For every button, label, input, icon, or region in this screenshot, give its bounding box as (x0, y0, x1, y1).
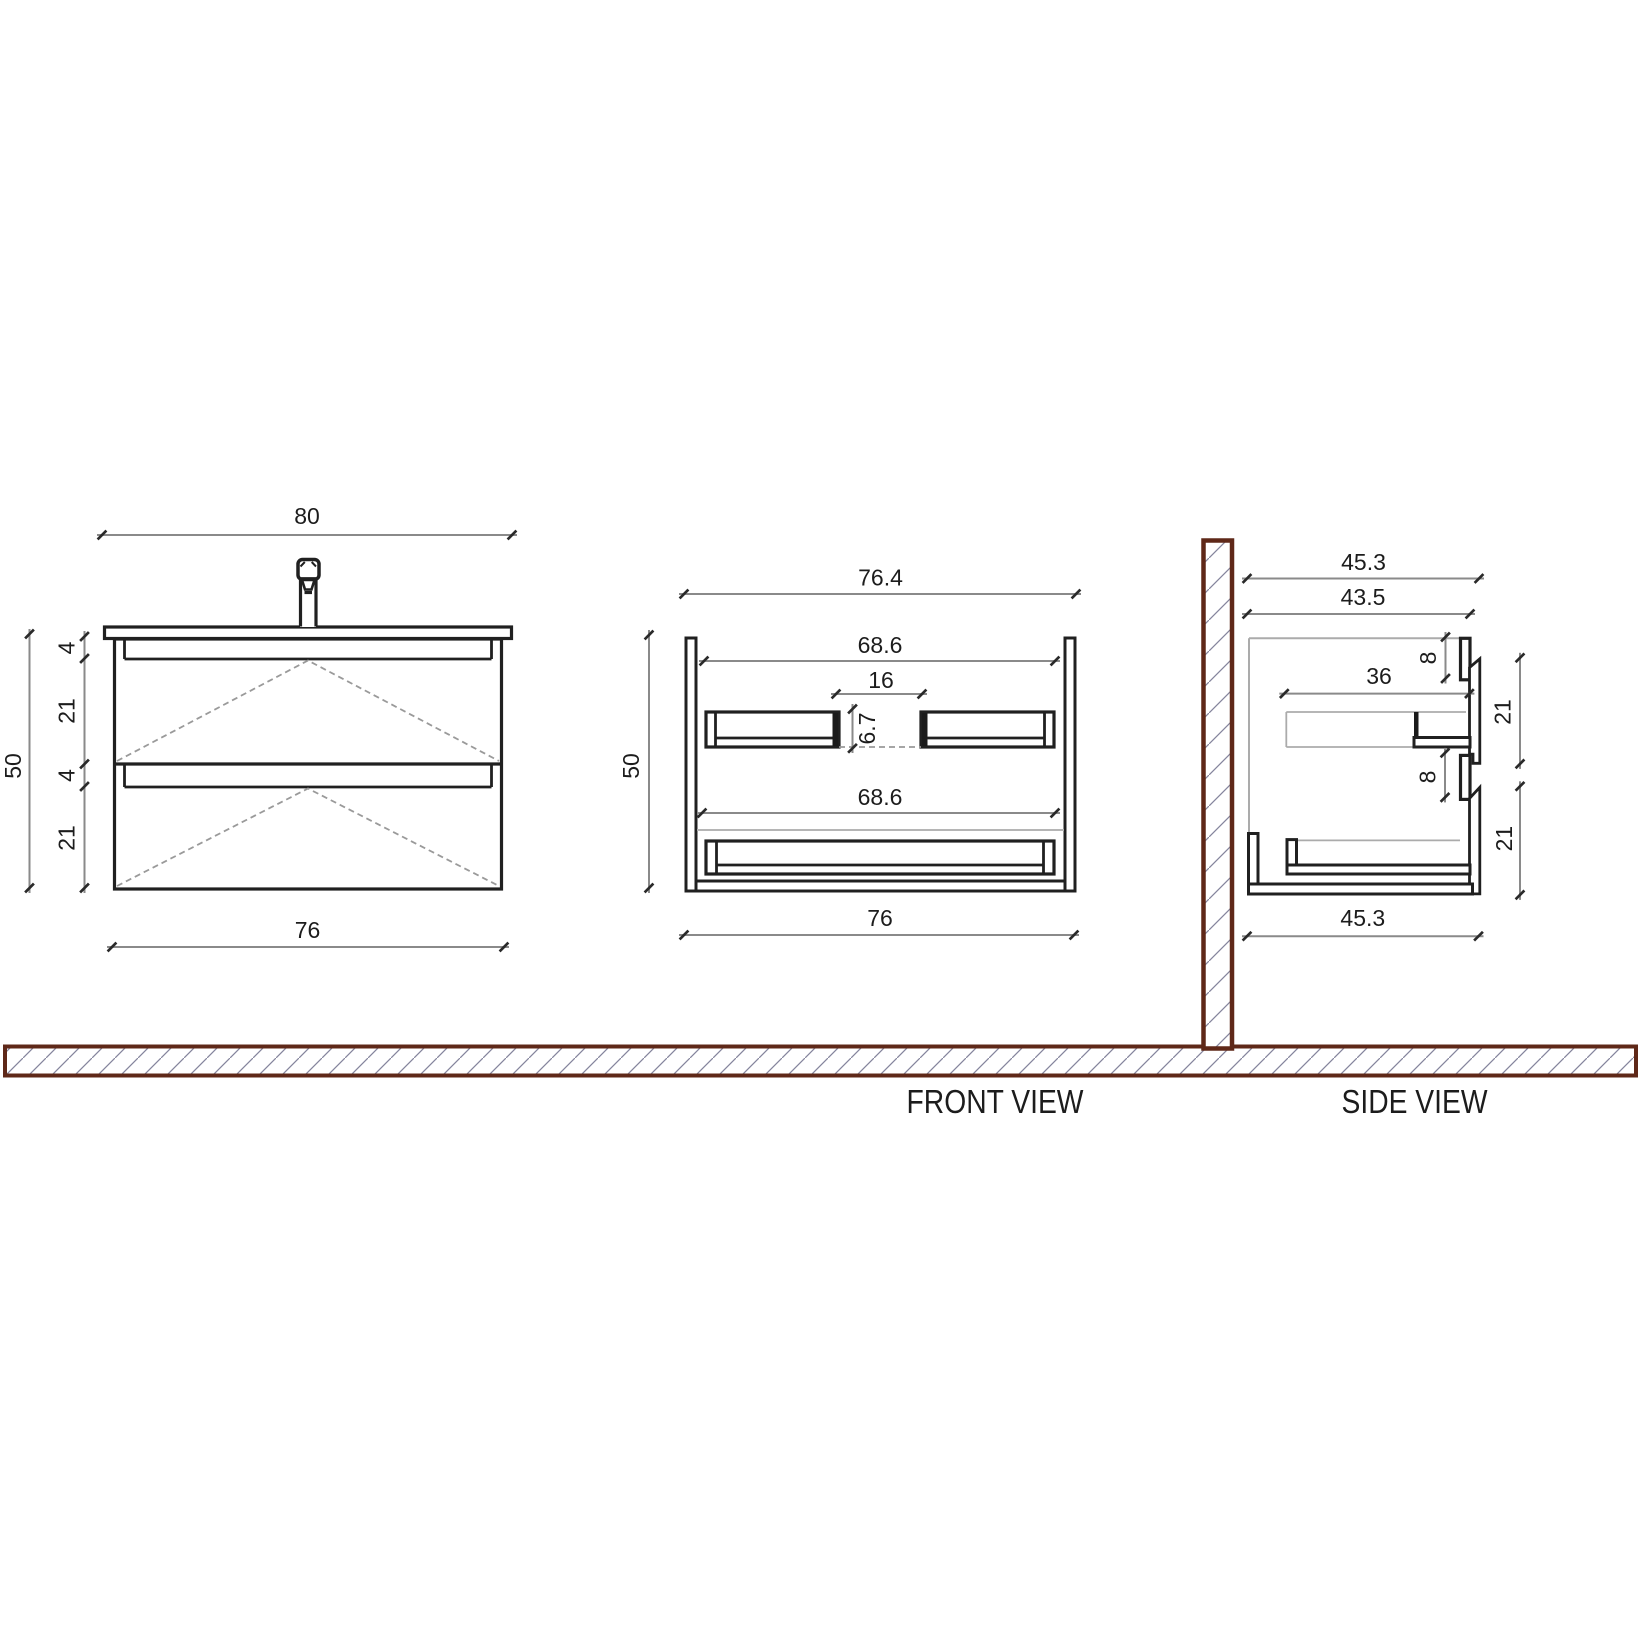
svg-text:50: 50 (618, 753, 644, 779)
svg-text:45.3: 45.3 (1340, 905, 1385, 931)
svg-text:36: 36 (1366, 663, 1392, 689)
svg-text:21: 21 (1490, 699, 1516, 725)
svg-text:FRONT VIEW: FRONT VIEW (907, 1083, 1085, 1120)
svg-text:50: 50 (0, 753, 26, 779)
svg-text:80: 80 (294, 503, 320, 529)
svg-text:4: 4 (54, 641, 80, 654)
svg-text:8: 8 (1415, 652, 1441, 665)
svg-text:8: 8 (1415, 771, 1441, 784)
svg-text:16: 16 (868, 667, 894, 693)
svg-text:76: 76 (295, 917, 321, 943)
svg-text:43.5: 43.5 (1341, 584, 1386, 610)
svg-text:76.4: 76.4 (858, 565, 903, 591)
svg-text:68.6: 68.6 (858, 632, 903, 658)
svg-text:21: 21 (54, 698, 80, 724)
svg-text:4: 4 (54, 769, 80, 782)
svg-text:SIDE VIEW: SIDE VIEW (1342, 1083, 1489, 1120)
svg-text:21: 21 (54, 825, 80, 851)
svg-text:76: 76 (867, 905, 893, 931)
svg-text:6.7: 6.7 (854, 713, 880, 745)
svg-text:45.3: 45.3 (1341, 549, 1386, 575)
svg-text:21: 21 (1491, 826, 1517, 852)
svg-text:68.6: 68.6 (858, 784, 903, 810)
